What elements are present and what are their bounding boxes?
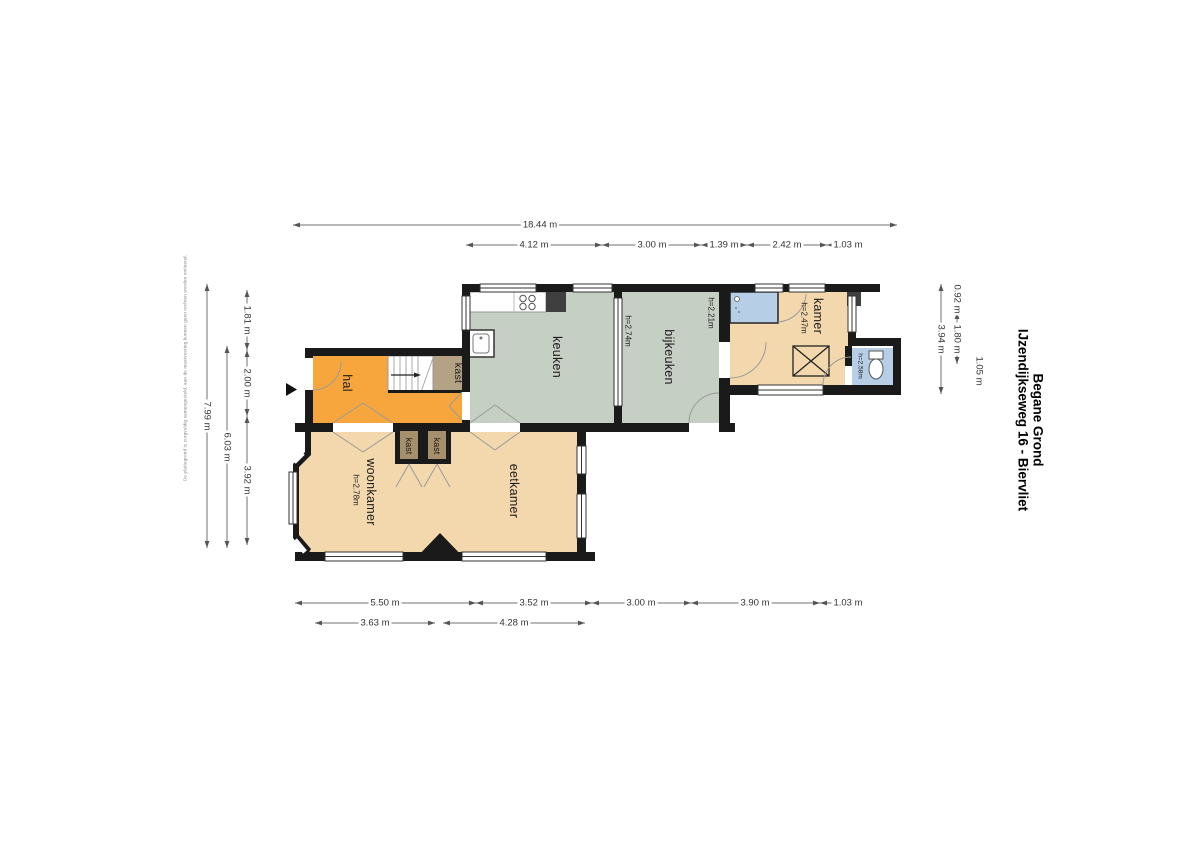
shower-icon xyxy=(730,292,778,323)
dim-left-1: 1.81 m xyxy=(242,303,253,336)
dim-left-total: 7.99 m xyxy=(202,399,213,432)
chimney-keuken xyxy=(546,292,566,312)
room-height-bijkeuken: h=2.21m xyxy=(707,297,716,328)
room-label-eetkamer: eetkamer xyxy=(507,464,521,519)
dim-bottom-5: 1.03 m xyxy=(831,598,864,609)
floorplan-page: 18.44 m 4.12 m 3.00 m 1.39 m 2.42 m 1.03… xyxy=(0,0,1199,848)
dim-left-2: 2.00 m xyxy=(242,366,253,399)
dim-bottom-1: 5.50 m xyxy=(368,598,401,609)
dim-top-total: 18.44 m xyxy=(521,220,559,231)
dim-bottom-inner-2: 4.28 m xyxy=(497,618,530,629)
dim-bottom-2: 3.52 m xyxy=(517,598,550,609)
dim-top-3: 1.39 m xyxy=(707,240,740,251)
room-height-keuken: h=2.74m xyxy=(624,315,633,346)
dim-left-mid: 6.03 m xyxy=(222,430,233,463)
dim-bottom-inner-1: 3.63 m xyxy=(358,618,391,629)
dim-bottom-3: 3.00 m xyxy=(624,598,657,609)
toilet-icon xyxy=(869,351,883,379)
dim-left-3: 3.92 m xyxy=(242,463,253,496)
stairs xyxy=(388,356,433,392)
dim-right-2: 1.80 m xyxy=(952,322,963,355)
dim-right-1: 0.92 m xyxy=(952,282,963,315)
room-label-kamer: kamer xyxy=(811,298,825,334)
room-label-keuken: keuken xyxy=(550,336,564,378)
room-label-kast-eetkamer: kast xyxy=(432,438,442,455)
sink-alcove xyxy=(468,330,494,357)
disclaimer-text: De plattegrond is zorgvuldig samengestel… xyxy=(183,255,188,481)
room-label-woonkamer: woonkamer xyxy=(364,458,378,525)
dim-top-4: 2.42 m xyxy=(770,240,803,251)
room-label-hal: hal xyxy=(340,374,354,392)
dim-bottom-4: 3.90 m xyxy=(738,598,771,609)
page-title-address: IJzendijkseweg 16 - Biervliet xyxy=(1016,329,1031,511)
room-label-kast-woonkamer: kast xyxy=(404,438,414,455)
room-height-badkamer: h=2.58m xyxy=(857,353,864,378)
dim-top-5: 1.03 m xyxy=(831,240,864,251)
kitchen-counter xyxy=(470,292,546,312)
dim-right-float: 1.05 m xyxy=(974,354,985,387)
dim-top-2: 3.00 m xyxy=(635,240,668,251)
room-height-kamer: h=2.47m xyxy=(800,302,809,333)
entrance-arrow-icon xyxy=(286,383,297,396)
room-label-bijkeuken: bijkeuken xyxy=(662,329,676,385)
room-label-kast-hal: kast xyxy=(452,363,464,383)
dim-top-1: 4.12 m xyxy=(517,240,550,251)
dim-right-total: 3.94 m xyxy=(936,322,947,355)
page-title-floor: Begane Grond xyxy=(1031,373,1046,466)
room-height-woonkamer: h=2.78m xyxy=(352,474,361,505)
